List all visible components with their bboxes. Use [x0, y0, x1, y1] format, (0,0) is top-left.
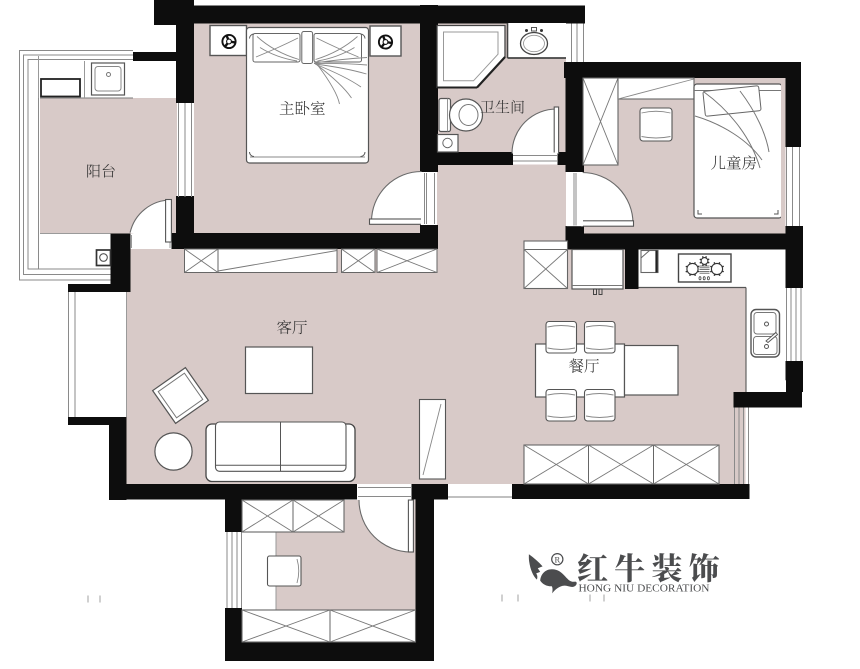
svg-text:HONG NIU DECORATION: HONG NIU DECORATION [579, 584, 711, 595]
svg-text:R: R [554, 554, 560, 564]
